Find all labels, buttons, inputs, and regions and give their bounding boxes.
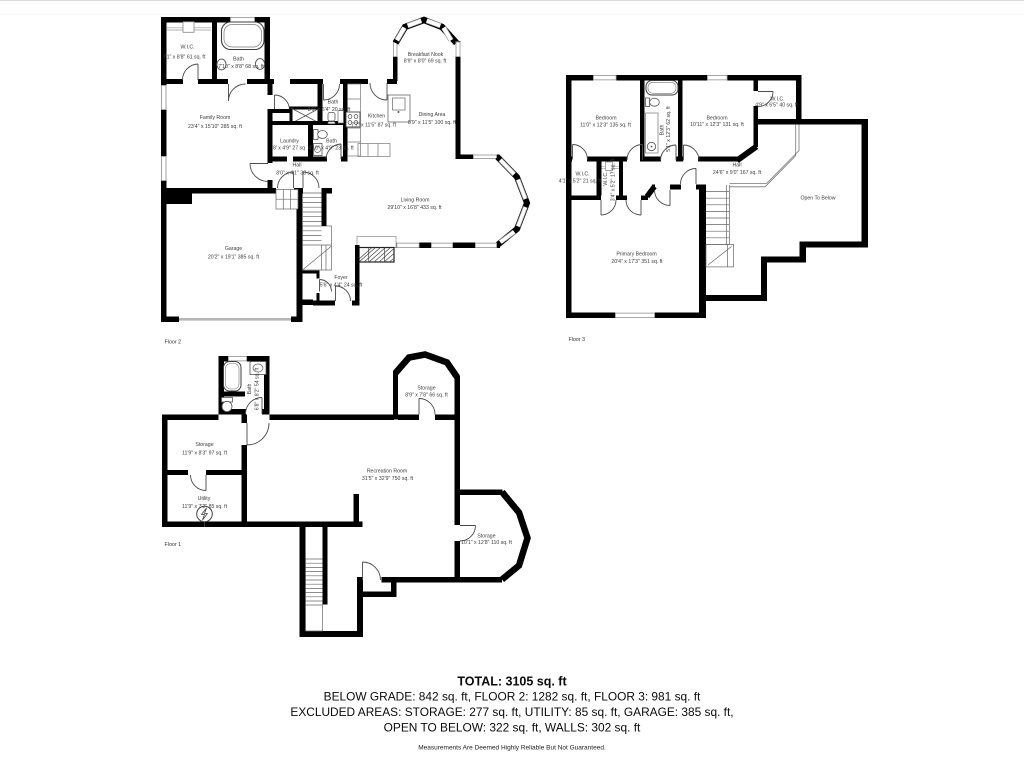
svg-text:Living Room: Living Room xyxy=(401,198,430,204)
svg-text:6'8" x 8'2" 54 sq. ft: 6'8" x 8'2" 54 sq. ft xyxy=(255,367,261,410)
svg-text:23'4" x 15'10" 285 sq. ft: 23'4" x 15'10" 285 sq. ft xyxy=(188,124,243,130)
svg-text:Bedroom: Bedroom xyxy=(706,116,727,122)
svg-text:4'10" x 4'9" 23 sq. ft: 4'10" x 4'9" 23 sq. ft xyxy=(308,146,354,152)
svg-text:Hall: Hall xyxy=(293,163,302,169)
svg-text:10'11" x 12'3" 131 sq. ft: 10'11" x 12'3" 131 sq. ft xyxy=(690,122,744,128)
svg-text:Storage: Storage xyxy=(477,534,495,540)
svg-text:Primary Bedroom: Primary Bedroom xyxy=(616,252,656,258)
svg-text:BELOW GRADE: 842 sq. ft, FLOOR: BELOW GRADE: 842 sq. ft, FLOOR 2: 1282 s… xyxy=(324,690,701,704)
svg-text:Bath: Bath xyxy=(328,100,339,106)
svg-text:11'9" x 8'3" 97 sq. ft: 11'9" x 8'3" 97 sq. ft xyxy=(182,451,228,457)
svg-text:Utility: Utility xyxy=(198,496,211,502)
svg-text:3'4" x 5'2" 17 sq. ft: 3'4" x 5'2" 17 sq. ft xyxy=(611,158,617,201)
svg-text:10'1" x 12'8" 110 sq. ft: 10'1" x 12'8" 110 sq. ft xyxy=(461,540,512,546)
svg-text:8'0" x 4'1" 33 sq. ft: 8'0" x 4'1" 33 sq. ft xyxy=(276,171,319,177)
svg-text:Floor 2: Floor 2 xyxy=(165,340,182,346)
svg-text:Bath: Bath xyxy=(660,125,666,136)
svg-text:11'0" x 12'3" 135 sq. ft: 11'0" x 12'3" 135 sq. ft xyxy=(580,123,631,129)
svg-text:8' x 4'9" 27 sq: 8' x 4'9" 27 sq xyxy=(273,146,305,152)
svg-text:7'10" x 8'8" 68 sq. ft: 7'10" x 8'8" 68 sq. ft xyxy=(218,64,264,70)
svg-text:Foyer: Foyer xyxy=(334,275,348,281)
svg-text:Measurements Are Deemed Highly: Measurements Are Deemed Highly Reliable … xyxy=(418,745,606,752)
svg-text:Storage: Storage xyxy=(417,386,435,392)
svg-text:8'9" x 11'5" 100 sq. ft: 8'9" x 11'5" 100 sq. ft xyxy=(408,120,457,126)
svg-text:W.I.C.: W.I.C. xyxy=(180,45,194,51)
svg-text:Bath: Bath xyxy=(247,384,253,395)
svg-text:Recreation Room: Recreation Room xyxy=(367,469,407,475)
svg-text:Hall: Hall xyxy=(733,163,742,169)
svg-text:Bath: Bath xyxy=(326,139,337,145)
svg-text:7'7" x 11'5" 87 sq. ft: 7'7" x 11'5" 87 sq. ft xyxy=(351,123,397,129)
svg-text:5'6" x 4'4" 24 sq. ft: 5'6" x 4'4" 24 sq. ft xyxy=(320,283,363,289)
svg-text:3'9" x 6'4" 20 sq. ft: 3'9" x 6'4" 20 sq. ft xyxy=(308,107,351,113)
svg-text:24'6" x 9'0" 167 sq. ft: 24'6" x 9'0" 167 sq. ft xyxy=(713,170,762,176)
svg-text:4'9" x 6'5" 40 sq. ft: 4'9" x 6'5" 40 sq. ft xyxy=(755,103,798,109)
svg-text:11'9" x 7'2" 85 sq. ft: 11'9" x 7'2" 85 sq. ft xyxy=(182,504,228,510)
svg-text:W.I.C.: W.I.C. xyxy=(603,171,609,185)
svg-text:8'9" x 7'8" 66 sq. ft: 8'9" x 7'8" 66 sq. ft xyxy=(405,393,448,399)
svg-text:Open To Below: Open To Below xyxy=(800,196,835,202)
svg-text:8'9" x 8'0" 69 sq. ft: 8'9" x 8'0" 69 sq. ft xyxy=(404,59,447,65)
svg-text:TOTAL: 3105 sq. ft: TOTAL: 3105 sq. ft xyxy=(457,675,567,689)
svg-text:Storage: Storage xyxy=(195,442,213,448)
svg-text:Bedroom: Bedroom xyxy=(595,116,616,122)
svg-text:Kitchen: Kitchen xyxy=(368,114,385,120)
svg-text:7'1" x 8'8" 61 sq. ft: 7'1" x 8'8" 61 sq. ft xyxy=(163,55,206,61)
svg-text:20'2" x 19'1" 385 sq. ft: 20'2" x 19'1" 385 sq. ft xyxy=(208,255,260,261)
svg-text:Floor 3: Floor 3 xyxy=(569,337,586,343)
svg-text:29'10" x 16'8" 433 sq. ft: 29'10" x 16'8" 433 sq. ft xyxy=(387,205,442,211)
svg-text:W.I.C.: W.I.C. xyxy=(575,172,589,178)
svg-text:Laundry: Laundry xyxy=(280,139,299,145)
svg-text:Floor 1: Floor 1 xyxy=(165,542,182,548)
svg-text:EXCLUDED AREAS: STORAGE: 277 s: EXCLUDED AREAS: STORAGE: 277 sq. ft, UTI… xyxy=(290,705,733,719)
svg-text:Breakfast Nook: Breakfast Nook xyxy=(408,52,444,58)
svg-text:Family Room: Family Room xyxy=(200,115,231,121)
svg-text:Garage: Garage xyxy=(225,246,242,252)
svg-text:31'5" x 32'9" 750 sq. ft: 31'5" x 32'9" 750 sq. ft xyxy=(362,476,414,482)
svg-text:Bath: Bath xyxy=(233,57,244,63)
svg-text:5'1" x 12'3" 62 sq. ft: 5'1" x 12'3" 62 sq. ft xyxy=(666,106,672,152)
svg-text:OPEN TO BELOW: 322 sq. ft, WAL: OPEN TO BELOW: 322 sq. ft, WALLS: 302 sq… xyxy=(384,721,641,735)
svg-text:Dining Area: Dining Area xyxy=(419,112,446,118)
svg-text:4'1" x 5'2" 21 sq. ft: 4'1" x 5'2" 21 sq. ft xyxy=(559,179,602,185)
svg-text:20'4" x 17'3" 351 sq. ft: 20'4" x 17'3" 351 sq. ft xyxy=(611,259,663,265)
